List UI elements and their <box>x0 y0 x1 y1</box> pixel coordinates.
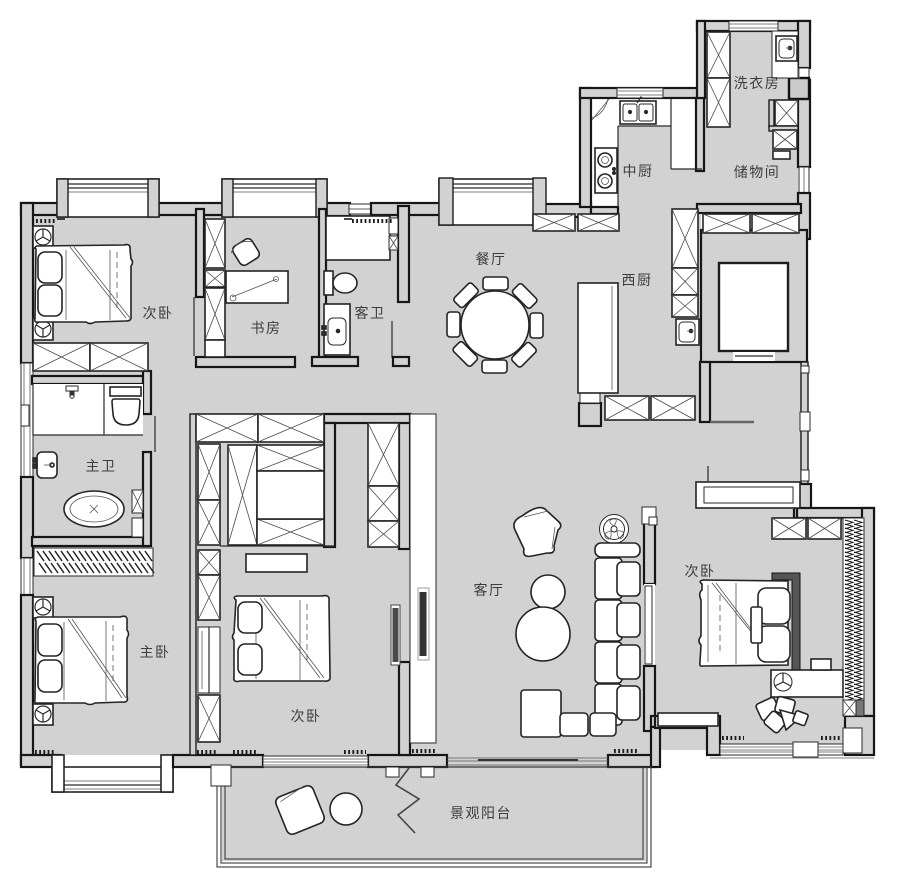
svg-text:客卫: 客卫 <box>355 305 386 321</box>
svg-text:洗衣房: 洗衣房 <box>734 75 781 91</box>
svg-text:书房: 书房 <box>251 320 282 336</box>
svg-text:餐厅: 餐厅 <box>476 251 507 267</box>
svg-text:中厨: 中厨 <box>623 163 654 179</box>
svg-text:主卫: 主卫 <box>86 458 117 474</box>
svg-text:次卧: 次卧 <box>291 708 322 724</box>
svg-text:储物间: 储物间 <box>734 164 781 180</box>
svg-text:次卧: 次卧 <box>685 563 716 579</box>
svg-text:次卧: 次卧 <box>143 305 174 321</box>
svg-text:西厨: 西厨 <box>622 272 653 288</box>
svg-text:客厅: 客厅 <box>474 582 505 598</box>
svg-text:主卧: 主卧 <box>140 644 171 660</box>
svg-text:景观阳台: 景观阳台 <box>450 805 512 821</box>
